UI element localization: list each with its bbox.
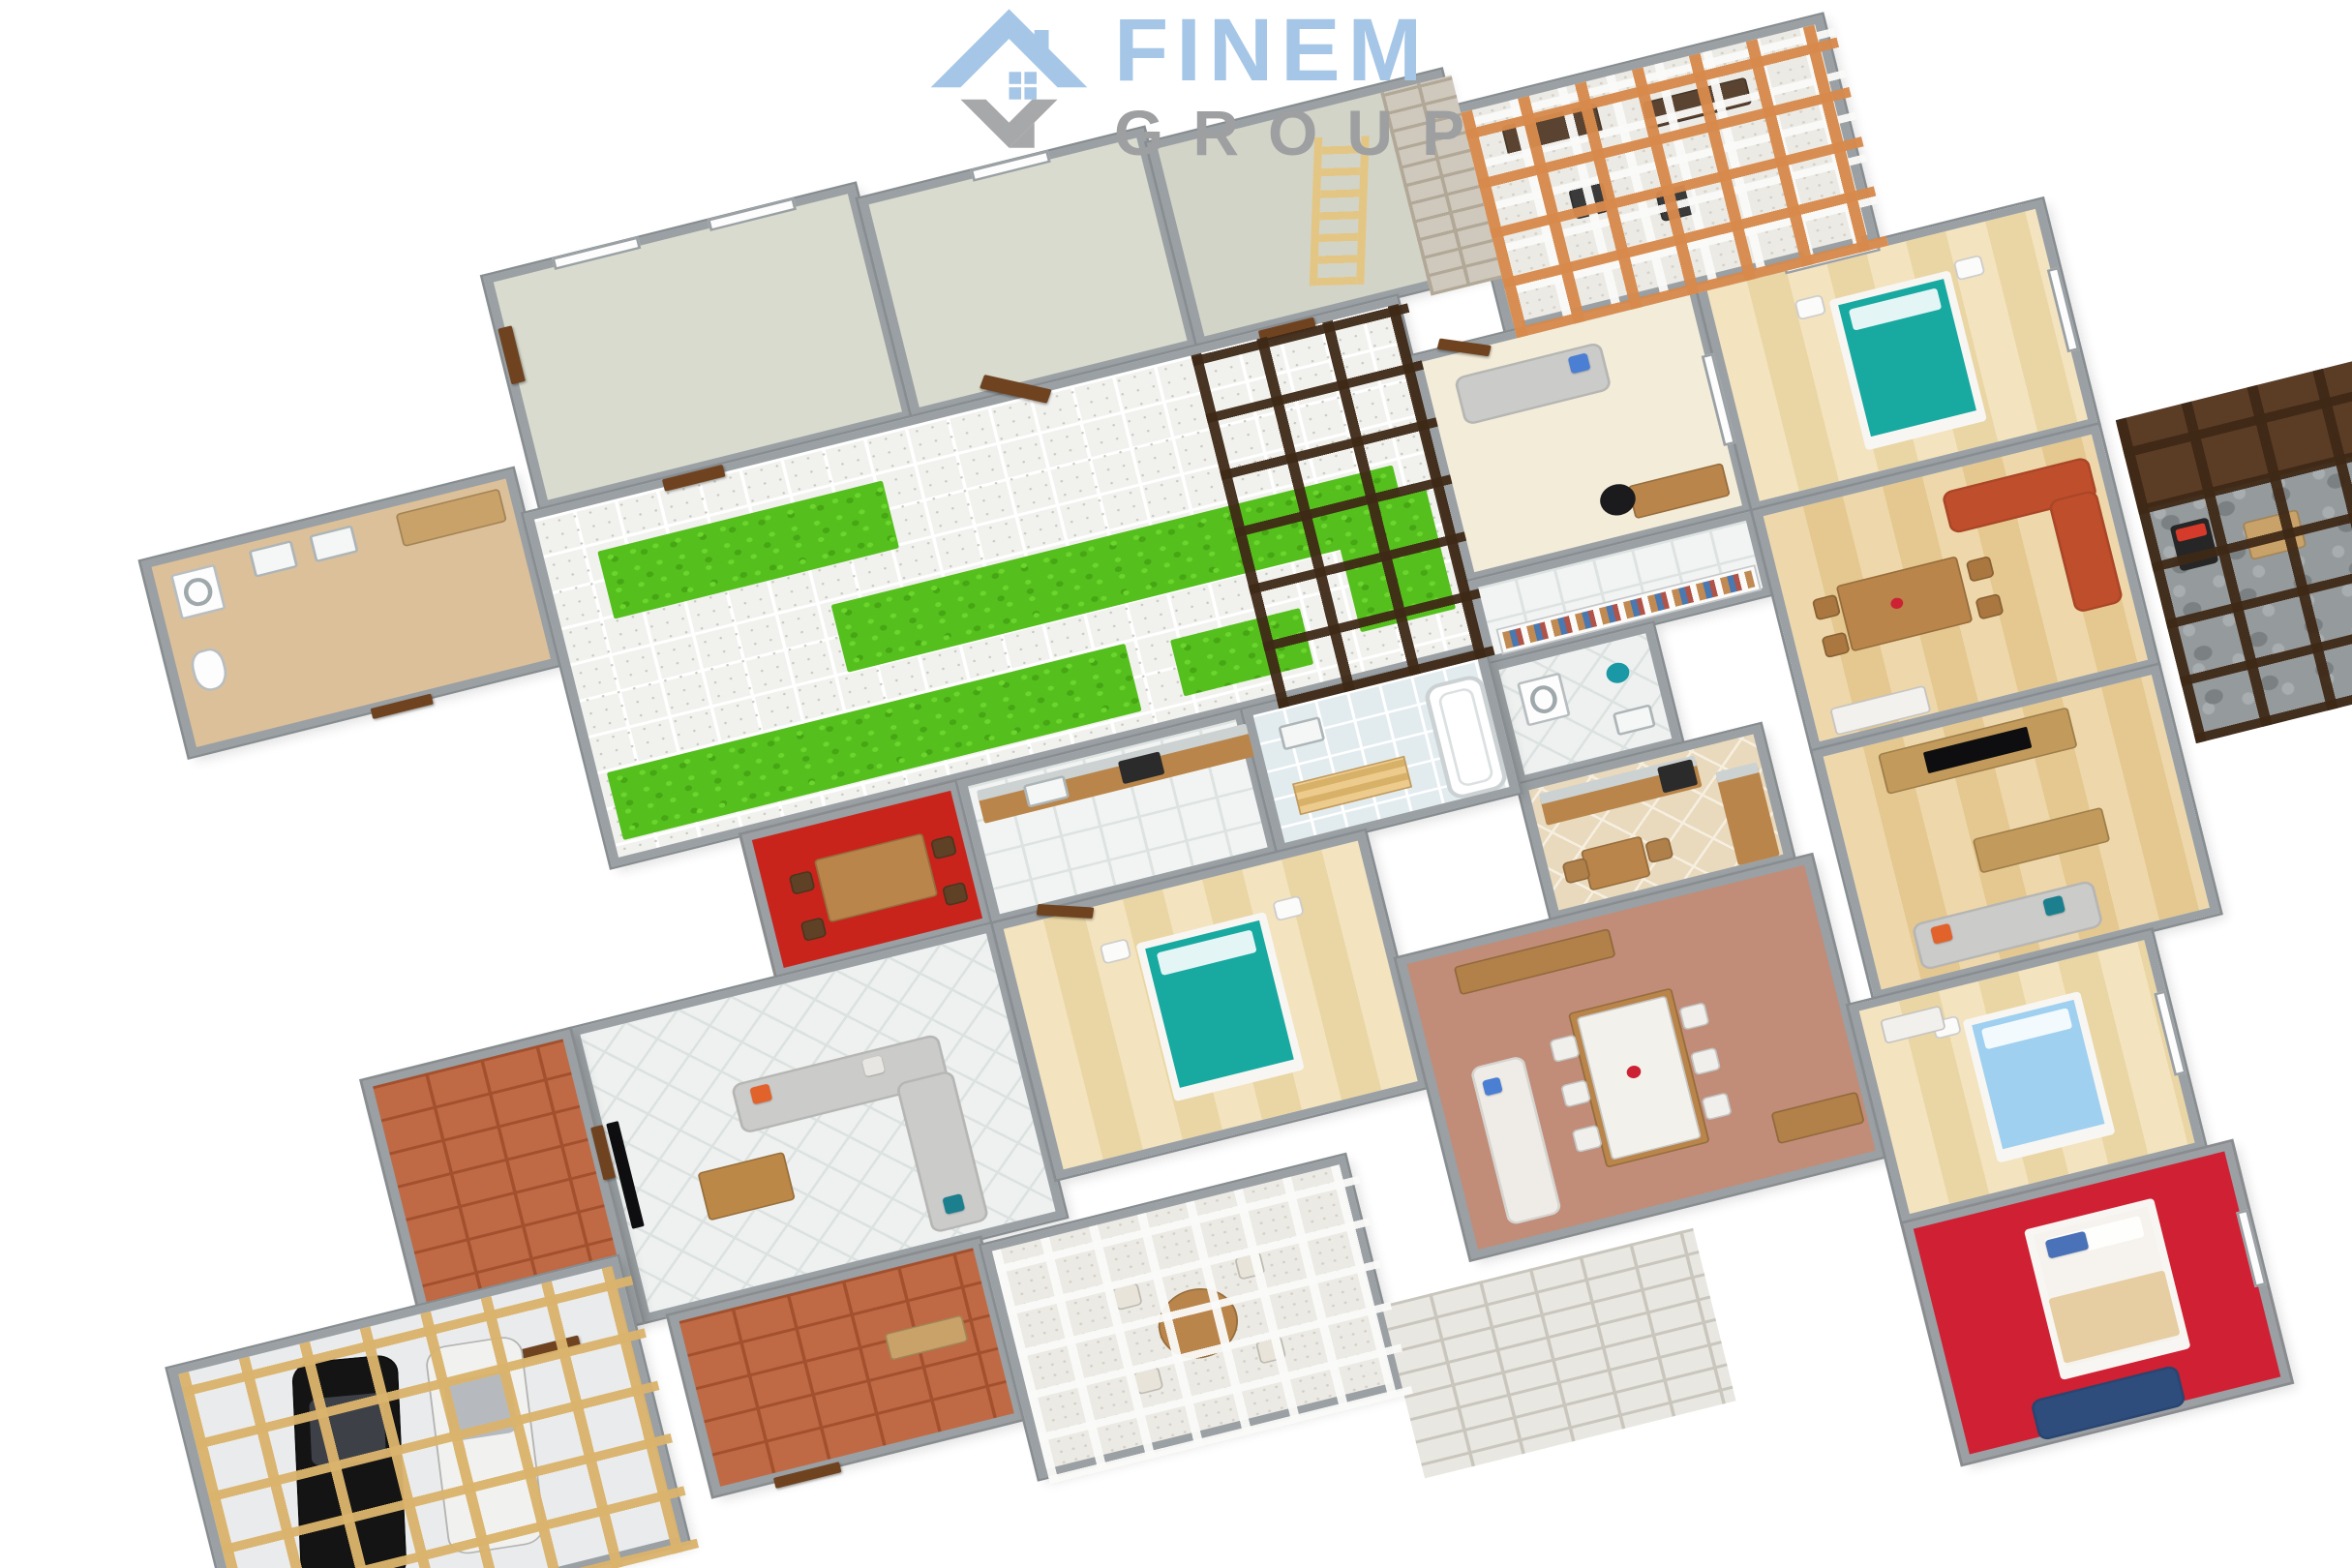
cabinet bbox=[395, 488, 507, 547]
double-bed bbox=[1962, 991, 2115, 1163]
coffee-table bbox=[697, 1152, 796, 1221]
floor-plan-3d bbox=[0, 0, 2352, 1568]
shelf bbox=[1642, 76, 1752, 130]
double-bed bbox=[1135, 912, 1305, 1101]
double-bed bbox=[1828, 270, 1987, 450]
finem-group-logo: FINEM GROUP bbox=[920, 6, 1493, 166]
floor-plan-render: FINEM GROUP bbox=[0, 0, 2352, 1568]
brick-path bbox=[1382, 1228, 1736, 1479]
sofa-sectional bbox=[2048, 489, 2125, 614]
bench bbox=[885, 1314, 969, 1361]
chair bbox=[942, 882, 969, 907]
car-black bbox=[291, 1353, 407, 1568]
chair bbox=[1568, 181, 1610, 220]
chair bbox=[799, 917, 827, 942]
dining-table bbox=[1836, 556, 1974, 651]
chair bbox=[1821, 631, 1850, 658]
logo-line1: FINEM bbox=[1114, 6, 1493, 95]
chair bbox=[1966, 556, 1995, 583]
bbq-grill bbox=[2170, 517, 2219, 571]
nightstand bbox=[1953, 255, 1986, 281]
living-dining-salmon bbox=[1397, 856, 1886, 1259]
nightstand bbox=[1794, 294, 1827, 320]
window bbox=[552, 236, 641, 270]
chair bbox=[1111, 1282, 1143, 1311]
bathroom-west-wing bbox=[141, 468, 561, 757]
car-white bbox=[424, 1334, 547, 1556]
chair bbox=[1234, 1251, 1266, 1281]
nightstand bbox=[1272, 895, 1305, 921]
sink bbox=[309, 525, 359, 562]
door bbox=[773, 1462, 842, 1489]
nightstand bbox=[1100, 938, 1132, 964]
counter bbox=[1715, 762, 1780, 865]
dining-table bbox=[814, 832, 939, 922]
lowboard bbox=[1770, 1091, 1864, 1144]
finem-house-logo-icon bbox=[920, 6, 1099, 166]
pergola-roof-boards bbox=[2116, 339, 2352, 511]
window bbox=[2047, 267, 2080, 353]
lowboard bbox=[1973, 807, 2111, 874]
sideboard bbox=[1454, 928, 1616, 996]
logo-line2: GROUP bbox=[1114, 101, 1493, 165]
window bbox=[2154, 990, 2186, 1076]
window bbox=[708, 197, 797, 231]
slatted-bench bbox=[1292, 756, 1412, 816]
dresser bbox=[1880, 1005, 1946, 1043]
sofa-plaid bbox=[2030, 1365, 2186, 1442]
washing-machine bbox=[1517, 673, 1571, 727]
chair bbox=[930, 835, 957, 860]
chair bbox=[1678, 1002, 1710, 1031]
door bbox=[371, 694, 434, 719]
chair bbox=[1255, 1336, 1287, 1365]
sink bbox=[1278, 716, 1325, 751]
chair bbox=[1560, 1079, 1592, 1108]
logo-wordmark: FINEM GROUP bbox=[1114, 6, 1493, 165]
chair bbox=[1812, 594, 1841, 621]
window bbox=[2236, 1209, 2267, 1287]
garage bbox=[167, 1256, 688, 1568]
chair bbox=[1690, 1046, 1722, 1075]
open-door bbox=[1037, 904, 1095, 919]
round-table bbox=[1151, 1280, 1246, 1367]
sofa-sectional bbox=[895, 1070, 990, 1234]
table bbox=[1581, 835, 1651, 890]
lawn-patch bbox=[1170, 608, 1313, 697]
open-door bbox=[1437, 338, 1492, 356]
sink bbox=[249, 540, 299, 578]
desk bbox=[1627, 463, 1731, 520]
chair bbox=[1655, 184, 1697, 223]
door bbox=[498, 325, 526, 384]
chair bbox=[788, 870, 815, 895]
toilet bbox=[188, 646, 230, 694]
table bbox=[2242, 509, 2307, 560]
chair bbox=[1132, 1366, 1164, 1395]
laundry-basket bbox=[1604, 660, 1631, 685]
chair bbox=[1644, 836, 1674, 863]
lawn-strip bbox=[830, 465, 1409, 673]
chair bbox=[1975, 593, 2004, 620]
chair bbox=[1561, 858, 1590, 885]
lawn-patch bbox=[1331, 489, 1456, 633]
chair bbox=[1549, 1034, 1581, 1063]
washing-machine bbox=[170, 564, 226, 620]
sink bbox=[1613, 704, 1656, 736]
chair bbox=[1701, 1092, 1733, 1121]
shelf bbox=[1501, 103, 1604, 157]
chair bbox=[1571, 1124, 1603, 1153]
